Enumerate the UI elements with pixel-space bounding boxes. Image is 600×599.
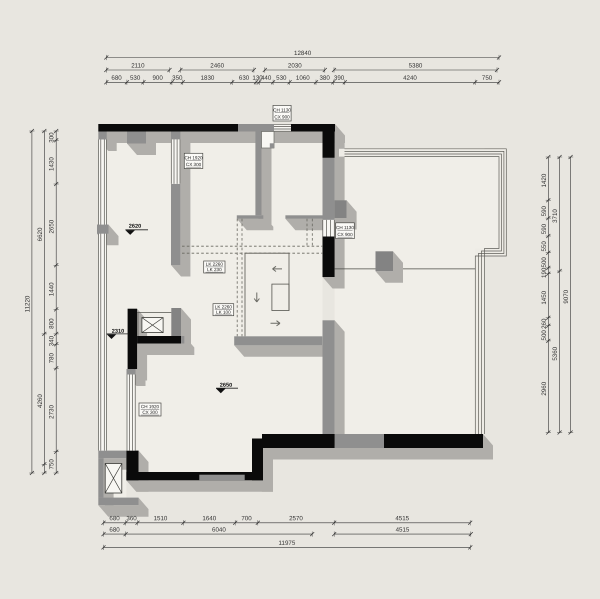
svg-text:500: 500 [541, 257, 548, 268]
svg-text:530: 530 [130, 75, 141, 82]
svg-text:LK 230: LK 230 [207, 267, 222, 272]
svg-text:300: 300 [49, 132, 56, 143]
svg-text:190: 190 [541, 267, 548, 278]
svg-text:340: 340 [49, 335, 56, 346]
svg-text:680: 680 [111, 75, 122, 82]
svg-text:12840: 12840 [294, 50, 312, 57]
svg-text:LK 100: LK 100 [216, 310, 231, 315]
svg-text:4515: 4515 [395, 515, 409, 522]
svg-text:CX 900: CX 900 [337, 232, 353, 237]
svg-text:2570: 2570 [289, 515, 303, 522]
svg-text:2110: 2110 [131, 62, 145, 69]
svg-text:CX 300: CX 300 [142, 410, 158, 415]
svg-text:CX 900: CX 900 [274, 114, 290, 119]
svg-text:LK 2260: LK 2260 [206, 262, 224, 267]
svg-text:CH 1130: CH 1130 [336, 225, 354, 230]
svg-text:CH 1920: CH 1920 [184, 155, 203, 160]
svg-text:750: 750 [482, 75, 493, 82]
svg-text:680: 680 [109, 515, 120, 522]
svg-text:11975: 11975 [279, 540, 296, 547]
svg-text:2960: 2960 [541, 381, 548, 395]
svg-text:550: 550 [541, 241, 548, 252]
svg-text:2460: 2460 [210, 62, 224, 69]
svg-text:630: 630 [239, 75, 250, 82]
svg-text:680: 680 [109, 527, 120, 534]
svg-text:780: 780 [49, 353, 56, 364]
svg-text:1830: 1830 [201, 75, 215, 82]
svg-text:1510: 1510 [154, 515, 168, 522]
svg-text:530: 530 [276, 75, 287, 82]
svg-text:2030: 2030 [288, 62, 302, 69]
svg-text:350: 350 [172, 75, 183, 82]
svg-text:1640: 1640 [202, 515, 216, 522]
svg-text:CH 1920: CH 1920 [141, 404, 160, 409]
svg-text:4240: 4240 [403, 75, 417, 82]
svg-text:750: 750 [49, 459, 56, 470]
svg-text:1420: 1420 [541, 173, 548, 187]
svg-text:4260: 4260 [37, 394, 44, 408]
svg-text:6620: 6620 [37, 227, 44, 241]
svg-text:380: 380 [319, 75, 330, 82]
svg-text:2730: 2730 [49, 405, 56, 419]
svg-text:1440: 1440 [49, 282, 56, 296]
svg-text:440: 440 [261, 75, 272, 82]
svg-text:4515: 4515 [396, 527, 410, 534]
svg-text:5380: 5380 [409, 62, 423, 69]
svg-text:1060: 1060 [296, 75, 310, 82]
svg-text:CX 300: CX 300 [186, 162, 202, 167]
svg-text:390: 390 [334, 75, 345, 82]
svg-text:6040: 6040 [212, 527, 226, 534]
svg-text:590: 590 [541, 205, 548, 216]
svg-text:CH 1130: CH 1130 [273, 108, 291, 113]
svg-text:500: 500 [541, 330, 548, 341]
svg-text:11220: 11220 [24, 295, 31, 312]
svg-text:LK 2260: LK 2260 [215, 304, 233, 309]
svg-text:360: 360 [126, 515, 137, 522]
svg-text:900: 900 [152, 75, 163, 82]
svg-text:9070: 9070 [563, 289, 570, 303]
svg-text:590: 590 [541, 223, 548, 234]
svg-text:700: 700 [241, 515, 252, 522]
svg-text:1450: 1450 [541, 290, 548, 304]
svg-text:2620: 2620 [129, 224, 141, 230]
svg-text:2650: 2650 [49, 219, 56, 233]
svg-text:3710: 3710 [552, 209, 559, 223]
svg-text:5360: 5360 [552, 346, 559, 360]
svg-text:260: 260 [541, 318, 548, 329]
svg-text:800: 800 [49, 318, 56, 329]
svg-text:1430: 1430 [49, 157, 56, 171]
